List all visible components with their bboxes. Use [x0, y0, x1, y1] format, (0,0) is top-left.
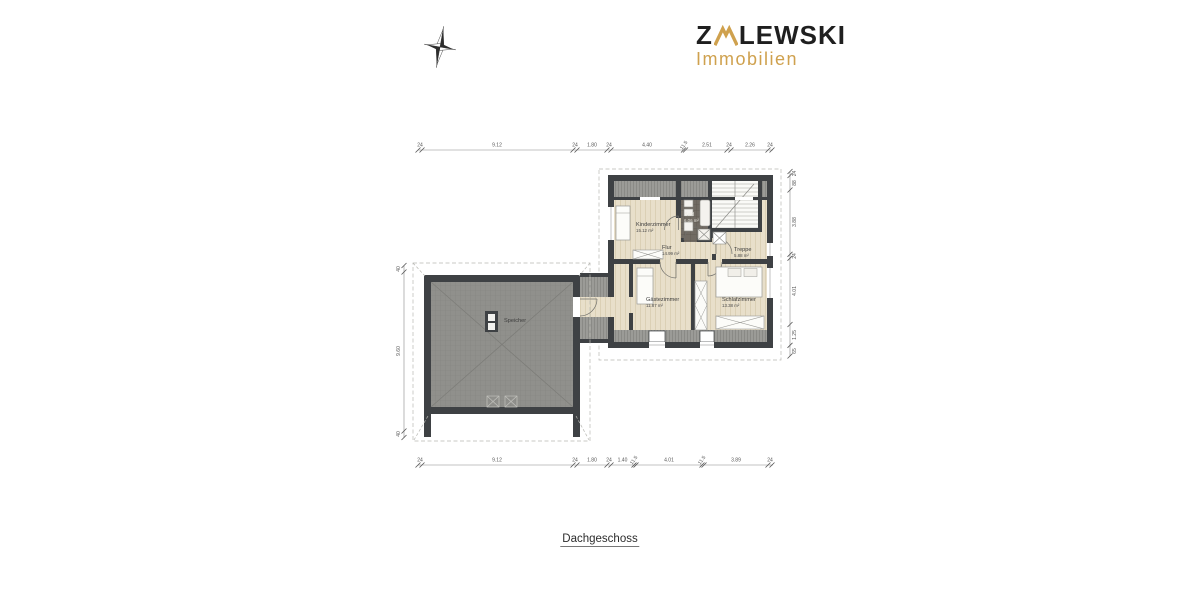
dim-value: 4.01 [792, 286, 798, 296]
dim-value: 3.89 [731, 458, 741, 464]
dim-value: 88 [792, 180, 798, 186]
dim-value: 1.80 [587, 143, 597, 149]
floorplan-title: Dachgeschoss [560, 533, 639, 547]
room-label: Speicher [504, 318, 526, 324]
bed-kinderzimmer [616, 206, 630, 240]
logo-subtitle: Immobilien [696, 50, 846, 68]
dim-value: 9.12 [492, 458, 502, 464]
logo-text-z: Z [696, 22, 713, 48]
dim-value: 1.25 [792, 330, 798, 340]
dim-value: 24 [572, 458, 578, 464]
dim-value: 40 [396, 266, 402, 272]
dim-value: 4.40 [642, 143, 652, 149]
logo-text-lewski: LEWSKI [739, 22, 846, 48]
room-area: 14.99 m² [662, 251, 680, 256]
dim-value: 9.12 [492, 143, 502, 149]
compass-icon [421, 24, 460, 71]
dim-value: 2.26 [745, 143, 755, 149]
staircase [712, 181, 758, 232]
dim-value: 4.01 [664, 458, 674, 464]
dimension-line-left: 40 9.60 40 [396, 263, 407, 440]
chimney [485, 311, 498, 332]
shaft-box [713, 232, 726, 244]
dim-value: 40 [396, 431, 402, 437]
dim-value: 24 [767, 143, 773, 149]
duct-column [695, 281, 707, 330]
dim-value: 24 [417, 458, 423, 464]
dim-value: 2.51 [702, 143, 712, 149]
dim-value: 24 [792, 253, 798, 259]
room-area: 13.38 m² [722, 303, 740, 308]
room-area: 5.88 m² [734, 253, 749, 258]
dim-value: 24 [606, 458, 612, 464]
dim-value: 65 [792, 348, 798, 354]
wardrobe-kinderzimmer [633, 250, 663, 259]
living-area: Kinderzimmer 15.12 m² Bad 6.06 m² Flur 1… [599, 169, 781, 360]
dim-value: 11.5 [679, 140, 689, 151]
logo-wordmark: Z LEWSKI [696, 22, 846, 48]
dimension-line-top: 24 9.12 24 1.80 24 4.40 11.5 2.51 24 2.2… [416, 140, 775, 153]
dim-value: 1.40 [618, 458, 628, 464]
dimension-line-bottom: 24 9.12 24 1.80 24 1.40 11.5 4.01 11.5 3… [416, 455, 775, 468]
room-area: 15.12 m² [636, 228, 654, 233]
dim-value: 24 [792, 171, 798, 177]
dim-value: 11.5 [629, 455, 639, 466]
dim-value: 24 [572, 143, 578, 149]
logo: Z LEWSKI Immobilien [696, 22, 846, 68]
dim-value: 3.88 [792, 217, 798, 227]
dim-value: 24 [726, 143, 732, 149]
dim-value: 11.5 [697, 455, 707, 466]
room-area: 6.06 m² [684, 218, 699, 223]
dimension-line-right: 24 88 3.88 24 4.01 1.25 65 [788, 169, 799, 359]
attic-area: Speicher [413, 263, 590, 441]
wardrobe-schlafzimmer [716, 316, 764, 329]
roof-slope-south [614, 330, 767, 342]
dim-value: 9.60 [396, 346, 402, 356]
roof-icon [714, 25, 738, 47]
dim-value: 1.80 [587, 458, 597, 464]
dim-value: 24 [417, 143, 423, 149]
floorplan-canvas: Kinderzimmer 15.12 m² Bad 6.06 m² Flur 1… [0, 0, 1200, 600]
dim-value: 24 [767, 458, 773, 464]
dim-value: 24 [606, 143, 612, 149]
room-area: 11.87 m² [646, 303, 664, 308]
bed-schlafzimmer [716, 267, 762, 297]
